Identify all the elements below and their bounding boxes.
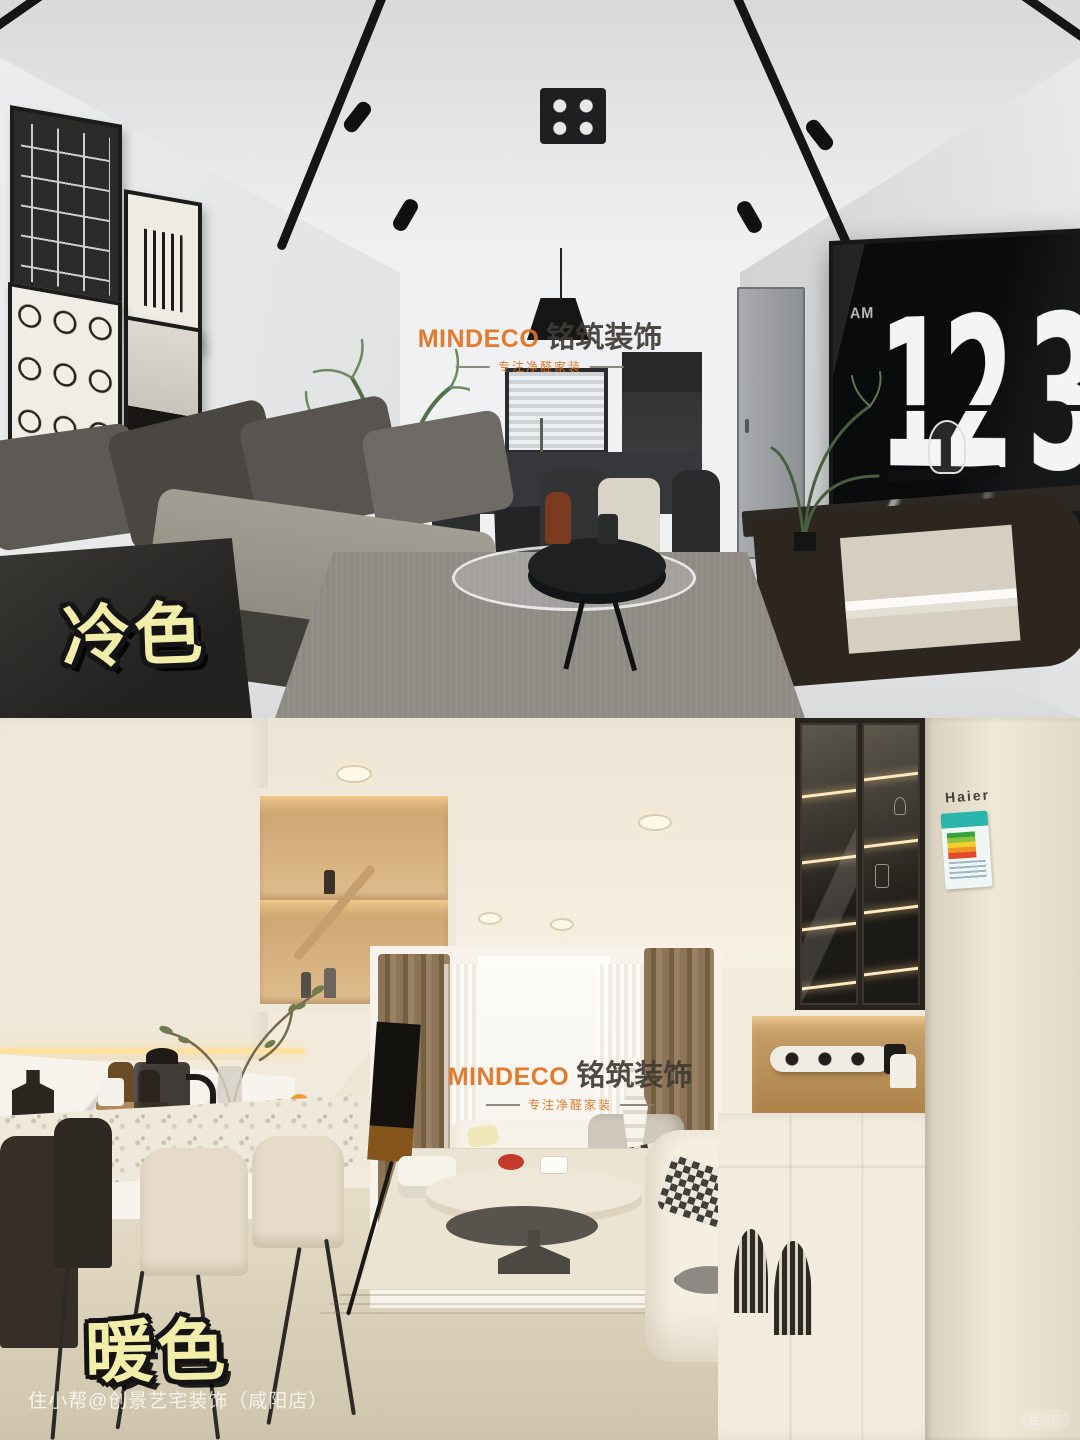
glass-door-right [862, 723, 920, 1005]
red-decor [498, 1154, 524, 1170]
downlight-4 [478, 912, 502, 925]
watermark-dash [456, 366, 490, 368]
lit-shelf [862, 838, 920, 849]
mindeco-watermark-cool: MINDECO 铭筑装饰 专注净醛家装 [418, 314, 663, 375]
mindeco-watermark-warm: MINDECO 铭筑装饰 专注净醛家装 [420, 1052, 720, 1113]
white-canister [98, 1078, 124, 1106]
glass-display-cabinet [795, 718, 925, 1010]
energy-label-header [940, 810, 988, 828]
lower-white-cabinet [718, 1113, 942, 1440]
glass-reflection [802, 725, 856, 1003]
tv-side-plant [766, 336, 886, 551]
cat-door-arch-1 [734, 1229, 768, 1313]
watermark-brand-en: MINDECO [418, 325, 540, 354]
cool-label: 冷色 [60, 578, 207, 682]
coffee-table-lower-tier [446, 1206, 598, 1246]
watermark-tagline: 专注净醛家装 [498, 358, 582, 375]
fridge: Haier [925, 718, 1080, 1440]
warm-label: 暖色 [84, 1295, 230, 1396]
dark-cup-decor [598, 514, 618, 544]
energy-efficiency-label [940, 810, 992, 889]
door-handle [745, 419, 749, 433]
cat-door-arch-2 [774, 1241, 812, 1335]
fridge-brand-logo: Haier [944, 786, 990, 805]
cold-vs-warm-comparison-image: AM 1234 [0, 0, 1080, 1440]
pendant-cord [560, 248, 562, 300]
glass-bottle [875, 864, 889, 888]
decor-branch [140, 940, 350, 1120]
watermark-brand-cn: 铭筑装饰 [576, 1052, 692, 1094]
photo-caption: 住小帮@创景艺宅装饰（咸阳店） [28, 1386, 328, 1413]
power-track [770, 1046, 892, 1072]
watermark-brand-en: MINDECO [448, 1063, 570, 1092]
energy-label-bars [947, 831, 977, 859]
lit-shelf [862, 905, 920, 916]
app-corner-watermark: 住小帮 [1020, 1409, 1070, 1430]
white-decor-item [890, 1054, 916, 1088]
black-bar-chair-2 [54, 1118, 112, 1268]
energy-label-text [949, 860, 987, 881]
amber-vase [545, 492, 571, 544]
downlight-2 [336, 765, 372, 783]
white-card-decor [540, 1156, 568, 1174]
back-window-blinds [505, 368, 608, 454]
beige-chair-1 [140, 1148, 248, 1276]
lit-shelf [862, 966, 920, 977]
warm-room-photo: Haier MINDECO 铭筑装饰 专注净醛家装 暖色 住小帮@创景艺宅装饰（… [0, 718, 1080, 1440]
watermark-tagline: 专注净醛家装 [528, 1096, 612, 1113]
downlight-3 [638, 814, 672, 831]
glass-door-left [800, 723, 858, 1005]
niche-bottle [324, 870, 335, 894]
lit-shelf [862, 771, 920, 782]
wire-lamp-decor [928, 420, 966, 474]
round-tray-table [528, 538, 666, 594]
vase-branch-decor [540, 418, 543, 452]
watermark-dash [620, 1104, 654, 1106]
ceiling-light-fixture [540, 88, 606, 144]
art-frame-squares [10, 105, 122, 313]
watermark-brand-cn: 铭筑装饰 [546, 314, 662, 356]
watermark-dash [486, 1104, 520, 1106]
cool-room-photo: AM 1234 [0, 0, 1080, 718]
beige-chair-2 [252, 1136, 344, 1248]
stemware-glass [894, 797, 906, 815]
watermark-dash [590, 366, 624, 368]
downlight-5 [550, 918, 574, 931]
wood-counter-niche [752, 1016, 930, 1116]
